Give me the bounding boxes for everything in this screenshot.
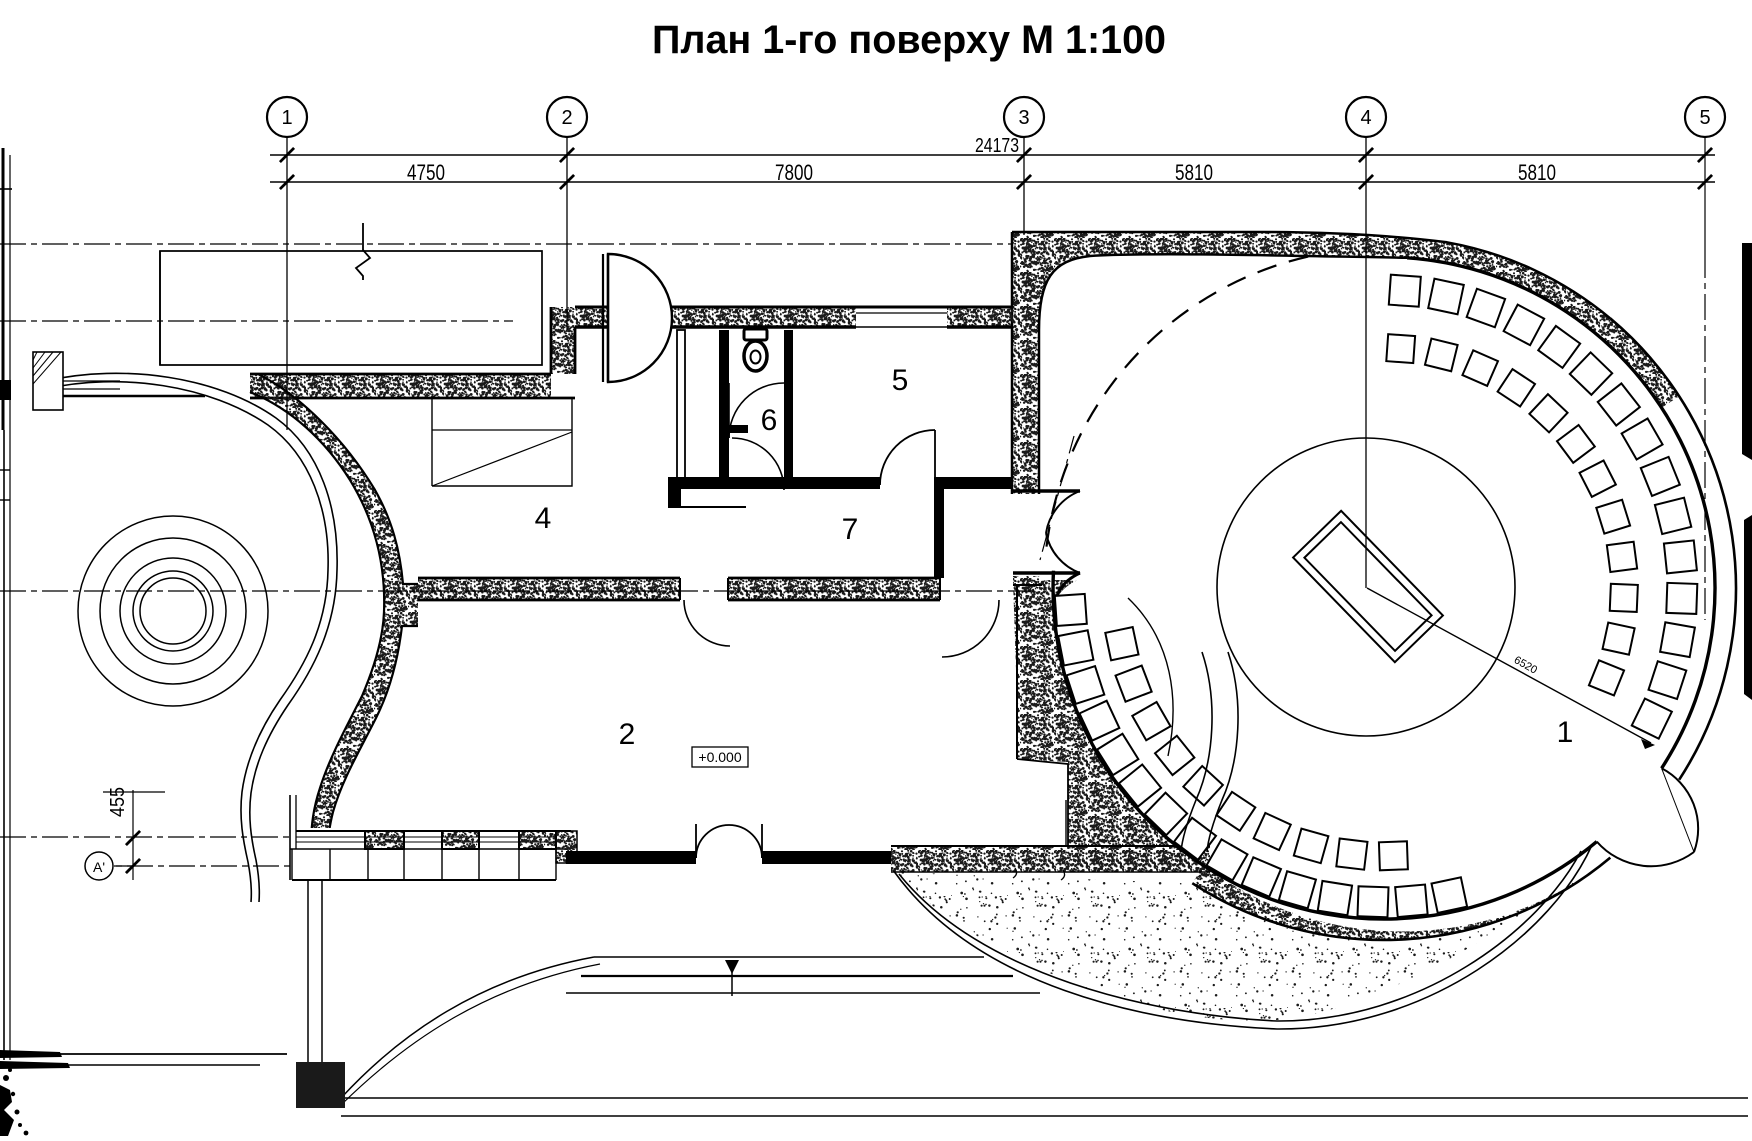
svg-text:6: 6 [761,404,778,437]
svg-text:2: 2 [561,107,572,129]
svg-text:5: 5 [892,364,909,397]
svg-text:A': A' [93,859,105,875]
svg-text:1: 1 [1557,716,1574,749]
svg-text:План 1-го поверху М 1:100: План 1-го поверху М 1:100 [652,18,1166,62]
svg-text:7: 7 [842,513,859,546]
svg-text:5810: 5810 [1175,160,1213,185]
svg-text:455: 455 [107,787,129,817]
svg-text:+0.000: +0.000 [698,749,741,765]
svg-text:4: 4 [535,502,552,535]
svg-text:5810: 5810 [1518,160,1556,185]
svg-text:5: 5 [1699,107,1710,129]
svg-text:3: 3 [1018,107,1029,129]
svg-text:2: 2 [619,718,636,751]
svg-text:4750: 4750 [407,160,445,185]
svg-text:24173: 24173 [975,135,1019,157]
svg-text:7800: 7800 [775,160,813,185]
svg-text:1: 1 [281,107,292,129]
svg-text:4: 4 [1360,107,1371,129]
